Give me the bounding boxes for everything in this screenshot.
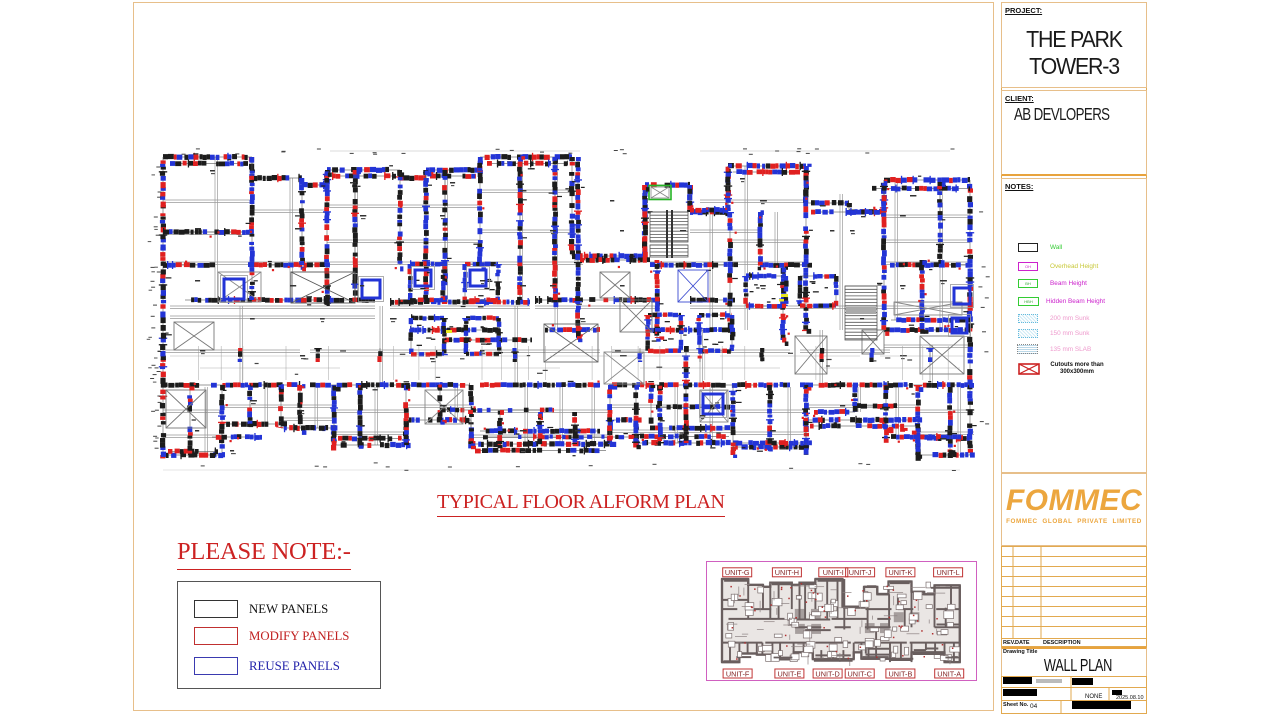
- svg-text:UNIT-E: UNIT-E: [777, 669, 801, 678]
- svg-text:UNIT-G: UNIT-G: [725, 568, 750, 577]
- svg-text:UNIT-H: UNIT-H: [775, 568, 799, 577]
- svg-text:UNIT-A: UNIT-A: [937, 669, 961, 678]
- svg-text:UNIT-L: UNIT-L: [937, 568, 960, 577]
- svg-text:UNIT-C: UNIT-C: [848, 669, 872, 678]
- svg-text:UNIT-K: UNIT-K: [888, 568, 912, 577]
- svg-text:UNIT-D: UNIT-D: [815, 669, 839, 678]
- svg-text:UNIT-F: UNIT-F: [726, 669, 750, 678]
- svg-text:UNIT-I: UNIT-I: [823, 568, 844, 577]
- svg-text:UNIT-B: UNIT-B: [888, 669, 912, 678]
- svg-text:UNIT-J: UNIT-J: [849, 568, 872, 577]
